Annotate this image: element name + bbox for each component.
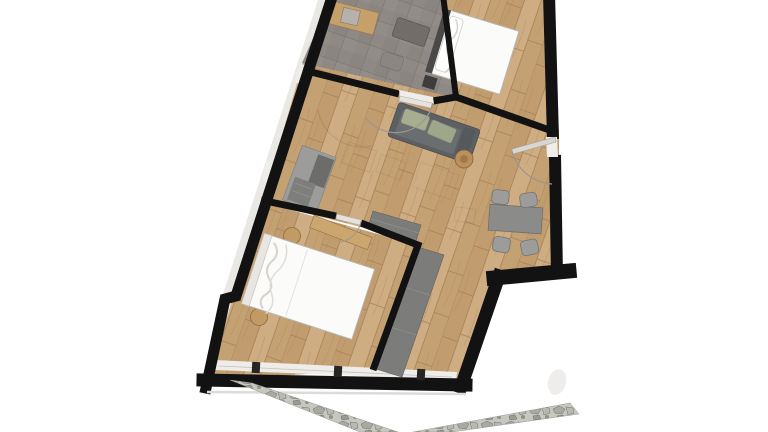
window-mullion-b [334,366,343,377]
window-mullion-a [252,362,261,373]
dining-chair-top-left [491,189,509,205]
stone-smudge [545,367,569,397]
wall-outer-right-upper [549,0,553,139]
building-shadow-bottom [207,392,466,394]
dining-chair-bottom-left [492,236,511,254]
dining-chair-top-right [519,192,538,208]
wall-outer-right-lower [555,155,557,277]
dining-chair-bottom-right [520,238,540,256]
side-table-inner [460,155,468,163]
floor-plan-canvas [0,0,768,432]
window-mullion-c [417,369,426,380]
dining-table [488,204,543,234]
stone-wall-strip-right [413,403,579,432]
floor-plan-page [0,0,768,432]
